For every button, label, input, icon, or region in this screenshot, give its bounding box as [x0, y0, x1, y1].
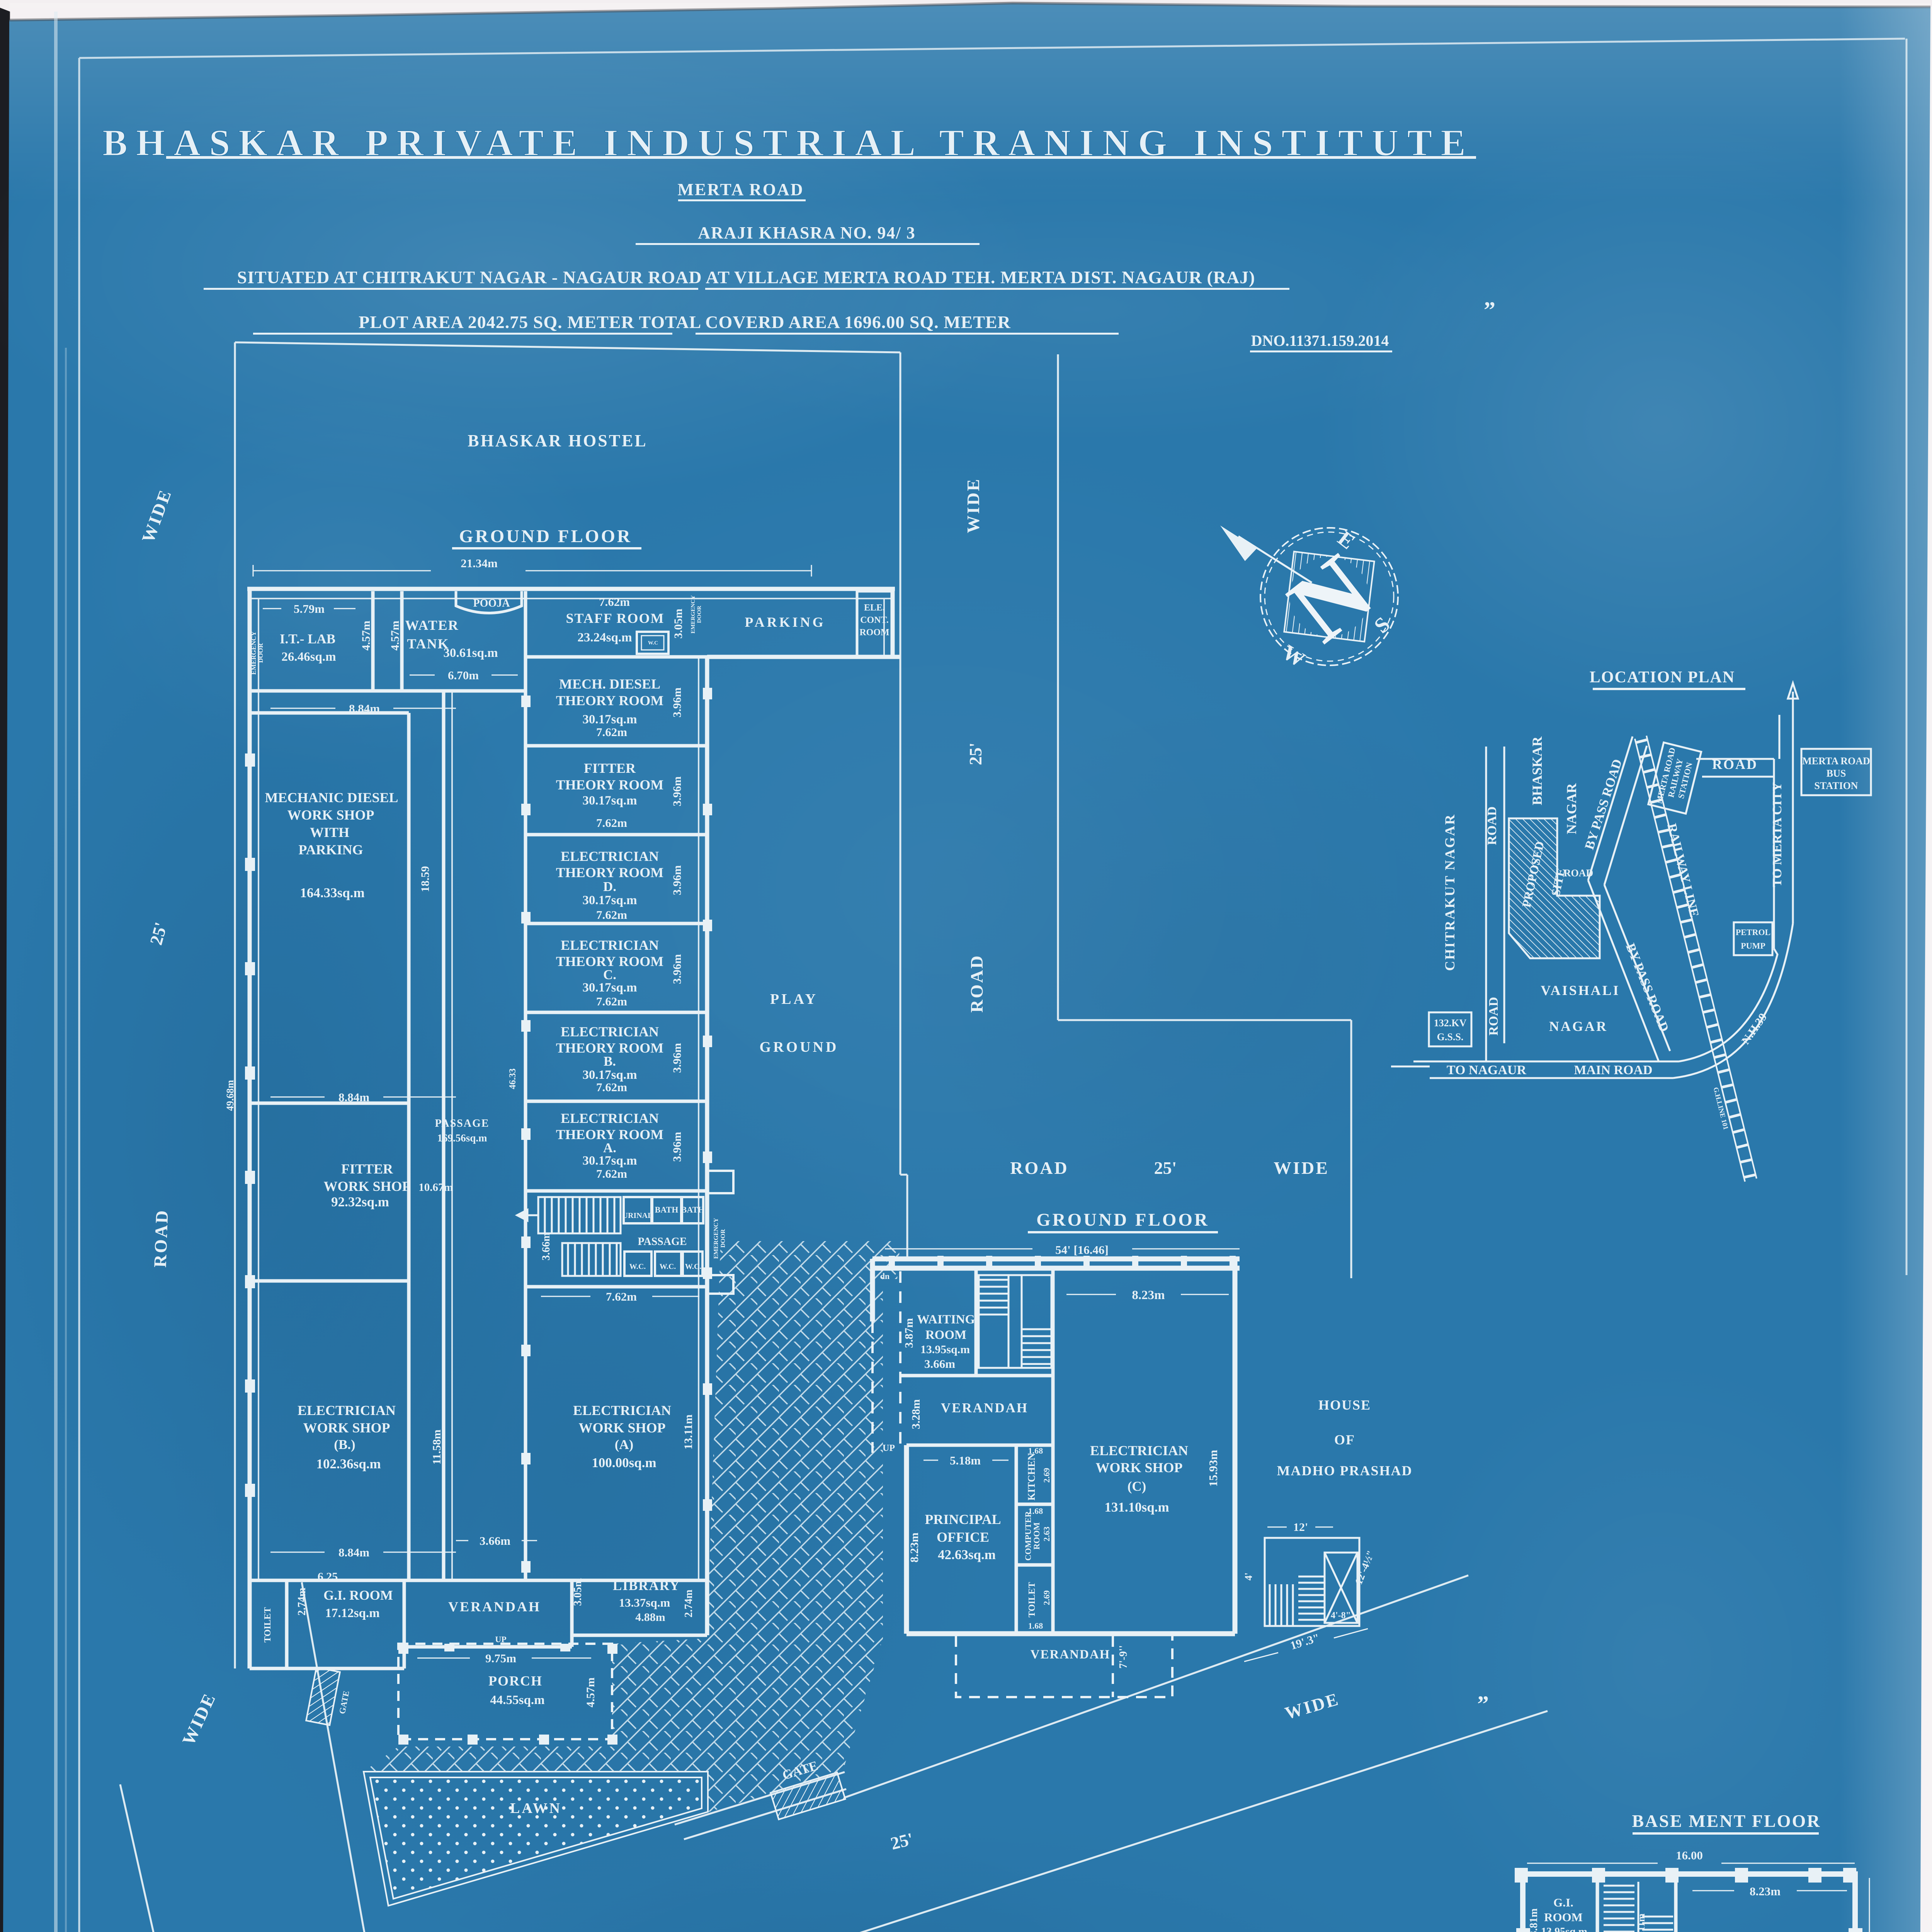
svg-text:3.87m: 3.87m	[903, 1318, 915, 1348]
svg-text:FITTER: FITTER	[341, 1161, 393, 1177]
svg-text:ROAD: ROAD	[150, 1209, 172, 1268]
svg-text:13.37sq.m: 13.37sq.m	[619, 1596, 670, 1609]
svg-text:MERTA ROAD: MERTA ROAD	[1802, 755, 1870, 767]
svg-text:STAFF ROOM: STAFF ROOM	[566, 611, 665, 626]
svg-text:4.57m: 4.57m	[584, 1677, 597, 1708]
svg-text:7.62m: 7.62m	[596, 816, 627, 830]
svg-text:1.68: 1.68	[1028, 1506, 1043, 1516]
svg-text:13.11m: 13.11m	[682, 1415, 695, 1450]
svg-text:EMERGENCY: EMERGENCY	[690, 595, 696, 633]
svg-text:54' [16.46]: 54' [16.46]	[1055, 1243, 1109, 1257]
svg-text:BASE MENT FLOOR: BASE MENT FLOOR	[1632, 1811, 1821, 1831]
svg-text:(A): (A)	[615, 1437, 634, 1452]
svg-text:30.17sq.m: 30.17sq.m	[582, 1068, 637, 1082]
svg-text:WORK SHOP: WORK SHOP	[287, 807, 374, 823]
svg-text:ELECTRICIAN: ELECTRICIAN	[561, 1024, 659, 1039]
svg-text:7.62m: 7.62m	[596, 725, 627, 739]
svg-text:(C): (C)	[1128, 1479, 1146, 1494]
svg-text:3.96m: 3.96m	[671, 954, 684, 984]
svg-text:GROUND FLOOR: GROUND FLOOR	[459, 526, 632, 546]
svg-text:ROAD: ROAD	[967, 954, 986, 1012]
svg-text:PRINCIPAL: PRINCIPAL	[925, 1512, 1001, 1527]
svg-text:UP: UP	[495, 1634, 506, 1644]
svg-text:WITH: WITH	[310, 825, 349, 840]
svg-text:WIDE: WIDE	[963, 478, 983, 533]
svg-text:13.95sq.m: 13.95sq.m	[1541, 1926, 1587, 1932]
svg-text:W.C: W.C	[648, 640, 658, 646]
svg-text:9.75m: 9.75m	[485, 1651, 516, 1665]
svg-text:LAWN: LAWN	[510, 1800, 562, 1816]
svg-text:OFFICE: OFFICE	[937, 1529, 989, 1545]
svg-text:4.57m: 4.57m	[389, 621, 401, 651]
svg-text:W.C.: W.C.	[660, 1262, 676, 1271]
svg-text:ELECTRICIAN: ELECTRICIAN	[561, 849, 659, 864]
svg-text:7'-9'': 7'-9''	[1117, 1645, 1129, 1669]
svg-text:TO NAGAUR: TO NAGAUR	[1447, 1063, 1527, 1077]
svg-text:100.00sq.m: 100.00sq.m	[592, 1455, 656, 1470]
svg-text:7.62m: 7.62m	[596, 908, 627, 922]
svg-text:THEORY ROOM: THEORY ROOM	[556, 1040, 663, 1056]
svg-text:TOILET: TOILET	[1027, 1582, 1037, 1617]
svg-text:102.36sq.m: 102.36sq.m	[316, 1456, 381, 1471]
svg-text:6.70m: 6.70m	[448, 668, 479, 682]
svg-text:7.62m: 7.62m	[606, 1290, 637, 1303]
svg-text:THEORY ROOM: THEORY ROOM	[556, 1127, 663, 1142]
svg-text:4.88m: 4.88m	[635, 1611, 665, 1624]
svg-text:TO MERTA CITY: TO MERTA CITY	[1770, 782, 1784, 887]
svg-text:3.05m: 3.05m	[572, 1578, 584, 1606]
svg-text:44.55sq.m: 44.55sq.m	[490, 1693, 544, 1707]
svg-text:BHASKAR HOSTEL: BHASKAR HOSTEL	[468, 431, 648, 450]
svg-text:ROAD: ROAD	[1010, 1158, 1068, 1178]
svg-text:2.63: 2.63	[1042, 1527, 1051, 1542]
svg-text:HOUSE: HOUSE	[1318, 1397, 1371, 1413]
svg-text:EMERGENCY: EMERGENCY	[250, 631, 257, 675]
svg-text:NAGAR: NAGAR	[1564, 783, 1579, 834]
svg-text:1.68: 1.68	[1028, 1446, 1043, 1456]
svg-text:2.69: 2.69	[1042, 1590, 1051, 1605]
svg-text:WAITING: WAITING	[917, 1313, 975, 1327]
svg-text:23.24sq.m: 23.24sq.m	[577, 631, 632, 645]
svg-text:WORK SHOP: WORK SHOP	[323, 1179, 410, 1194]
svg-text:BHASKAR: BHASKAR	[1529, 736, 1545, 805]
svg-text:A.: A.	[603, 1140, 616, 1155]
svg-text:3.28m: 3.28m	[910, 1399, 922, 1429]
svg-text:ELECTRICIAN: ELECTRICIAN	[298, 1403, 396, 1418]
svg-text:THEORY ROOM: THEORY ROOM	[556, 954, 663, 969]
svg-text:PARKING: PARKING	[745, 614, 825, 630]
svg-text:49.68m: 49.68m	[224, 1080, 236, 1111]
svg-text:26.46sq.m: 26.46sq.m	[281, 650, 336, 664]
svg-text:WORK SHOP: WORK SHOP	[303, 1420, 390, 1435]
svg-text:4.57m: 4.57m	[360, 621, 372, 651]
svg-text:16.00: 16.00	[1676, 1849, 1703, 1862]
svg-text:BUS: BUS	[1827, 768, 1846, 779]
svg-text:1.68: 1.68	[1028, 1621, 1043, 1631]
svg-text:PUMP: PUMP	[1741, 941, 1765, 951]
svg-text:8.84m: 8.84m	[338, 1090, 369, 1104]
svg-text:POOJA: POOJA	[473, 597, 510, 609]
svg-text:164.33sq.m: 164.33sq.m	[300, 885, 364, 900]
svg-text:4'-8": 4'-8"	[1331, 1611, 1351, 1621]
svg-text:ELECTRICIAN: ELECTRICIAN	[561, 937, 659, 953]
svg-text:VERANDAH: VERANDAH	[941, 1400, 1028, 1415]
svg-text:W.C.: W.C.	[685, 1262, 702, 1271]
svg-text:MERTA ROAD: MERTA ROAD	[677, 180, 804, 199]
svg-text:15.93m: 15.93m	[1206, 1450, 1220, 1487]
svg-text:25': 25'	[966, 743, 985, 765]
svg-text:CHITRAKUT NAGAR: CHITRAKUT NAGAR	[1442, 813, 1458, 971]
svg-text:PLOT AREA 2042.75 SQ. METER: PLOT AREA 2042.75 SQ. METER TOTAL COVERD…	[359, 312, 1011, 332]
svg-text:(B.): (B.)	[334, 1437, 355, 1452]
svg-text:30.61sq.m: 30.61sq.m	[443, 646, 498, 660]
svg-text:2.74m: 2.74m	[683, 1590, 695, 1617]
svg-text:”: ”	[1484, 297, 1495, 323]
svg-text:GROUND: GROUND	[760, 1039, 839, 1055]
svg-text:WORK SHOP: WORK SHOP	[578, 1420, 665, 1435]
svg-text:5.79m: 5.79m	[294, 602, 325, 616]
svg-text:4': 4'	[1243, 1572, 1254, 1580]
svg-text:VAISHALI: VAISHALI	[1541, 983, 1620, 998]
svg-text:3.66m: 3.66m	[540, 1233, 552, 1260]
svg-text:OF: OF	[1334, 1432, 1355, 1447]
svg-text:LIBRARY: LIBRARY	[613, 1578, 680, 1593]
svg-text:GROUND FLOOR: GROUND FLOOR	[1036, 1210, 1209, 1230]
svg-text:ELECTRICIAN: ELECTRICIAN	[1090, 1443, 1188, 1458]
svg-text:DOOR: DOOR	[720, 1229, 726, 1248]
svg-text:18.59: 18.59	[419, 866, 432, 892]
svg-text:12': 12'	[1293, 1521, 1308, 1534]
svg-text:3.96m: 3.96m	[671, 1043, 684, 1073]
svg-text:3.81m: 3.81m	[1528, 1908, 1540, 1932]
svg-text:DNO.11371.159.2014: DNO.11371.159.2014	[1251, 332, 1389, 349]
svg-text:THEORY ROOM: THEORY ROOM	[556, 865, 663, 880]
svg-text:MECH. DIESEL: MECH. DIESEL	[559, 676, 660, 692]
svg-text:PLAY: PLAY	[770, 991, 818, 1007]
svg-text:8.84m: 8.84m	[338, 1546, 369, 1559]
svg-text:PORCH: PORCH	[488, 1673, 543, 1689]
svg-text:25': 25'	[1154, 1158, 1177, 1178]
svg-text:ARAJI KHASRA NO. 94/ 3: ARAJI KHASRA NO. 94/ 3	[698, 223, 916, 242]
svg-text:30.17sq.m: 30.17sq.m	[582, 893, 637, 907]
svg-text:KITCHEN: KITCHEN	[1026, 1453, 1037, 1500]
svg-text:CONT.: CONT.	[860, 615, 889, 625]
svg-text:PARKING: PARKING	[298, 842, 363, 857]
svg-text:MAIN ROAD: MAIN ROAD	[1574, 1063, 1652, 1077]
svg-text:30.17sq.m: 30.17sq.m	[582, 713, 637, 726]
svg-text:D.: D.	[603, 879, 616, 894]
svg-text:8.23m: 8.23m	[1750, 1884, 1781, 1898]
svg-text:G.I. ROOM: G.I. ROOM	[323, 1588, 393, 1603]
svg-text:3.05m: 3.05m	[672, 609, 685, 639]
svg-text:ELECTRICIAN: ELECTRICIAN	[561, 1111, 659, 1126]
svg-text:8.23m: 8.23m	[1132, 1288, 1165, 1302]
svg-text:30.17sq.m: 30.17sq.m	[582, 794, 637, 808]
svg-text:3.96m: 3.96m	[671, 1132, 684, 1162]
svg-text:C.: C.	[603, 967, 616, 982]
svg-text:132.KV: 132.KV	[1434, 1017, 1467, 1029]
svg-text:5.18m: 5.18m	[950, 1454, 981, 1467]
svg-text:ROOM: ROOM	[1544, 1910, 1583, 1924]
svg-text:VERANDAH: VERANDAH	[448, 1599, 541, 1614]
svg-text:THEORY ROOM: THEORY ROOM	[556, 693, 663, 708]
svg-text:THEORY ROOM: THEORY ROOM	[556, 777, 663, 793]
svg-text:DOOR: DOOR	[257, 643, 264, 663]
svg-text:17.12sq.m: 17.12sq.m	[325, 1606, 379, 1620]
svg-text:2.69: 2.69	[1042, 1468, 1051, 1483]
svg-text:ROAD: ROAD	[1486, 997, 1501, 1036]
svg-text:FITTER: FITTER	[584, 760, 636, 776]
svg-text:dn: dn	[880, 1271, 889, 1281]
svg-text:VERANDAH: VERANDAH	[1031, 1648, 1111, 1662]
svg-text:ROOM: ROOM	[1032, 1522, 1041, 1549]
svg-text:131.10sq.m: 131.10sq.m	[1104, 1500, 1169, 1515]
svg-text:21.34m: 21.34m	[461, 556, 498, 570]
svg-text:4.11m: 4.11m	[1636, 1913, 1647, 1932]
svg-text:URINAL: URINAL	[622, 1211, 653, 1220]
svg-text:8.23m: 8.23m	[908, 1532, 921, 1563]
svg-text:3.96m: 3.96m	[671, 687, 684, 718]
svg-text:PASSAGE: PASSAGE	[638, 1236, 687, 1248]
svg-text:ROAD: ROAD	[1485, 806, 1499, 845]
svg-text:169.56sq.m: 169.56sq.m	[437, 1132, 487, 1144]
svg-text:PASSAGE: PASSAGE	[435, 1117, 489, 1129]
svg-text:MECHANIC DIESEL: MECHANIC DIESEL	[265, 790, 398, 805]
svg-text:3.96m: 3.96m	[671, 776, 684, 806]
svg-text:BATH: BATH	[655, 1205, 679, 1214]
svg-text:TANK: TANK	[407, 636, 449, 651]
svg-text:I.T.- LAB: I.T.- LAB	[280, 631, 335, 646]
svg-text:92.32sq.m: 92.32sq.m	[331, 1194, 389, 1209]
svg-text:7.62m: 7.62m	[596, 1080, 627, 1094]
svg-text:8.84m: 8.84m	[349, 702, 380, 715]
svg-text:G.I.: G.I.	[1553, 1896, 1573, 1909]
svg-text:10.67m: 10.67m	[418, 1181, 453, 1194]
svg-text:46.33: 46.33	[508, 1068, 518, 1089]
svg-text:13.95sq.m: 13.95sq.m	[920, 1343, 970, 1356]
svg-text:”: ”	[1477, 1691, 1489, 1717]
svg-text:30.17sq.m: 30.17sq.m	[582, 981, 637, 995]
svg-text:PETROL: PETROL	[1736, 927, 1770, 937]
svg-text:WORK SHOP: WORK SHOP	[1095, 1460, 1182, 1475]
svg-text:6.25: 6.25	[318, 1570, 338, 1583]
svg-text:11.58m: 11.58m	[430, 1430, 443, 1465]
svg-text:7.62m: 7.62m	[596, 995, 627, 1008]
svg-text:7.62m: 7.62m	[596, 1167, 627, 1180]
svg-text:B.: B.	[604, 1054, 616, 1069]
svg-text:W.C.: W.C.	[629, 1262, 646, 1271]
svg-text:ELE.: ELE.	[864, 603, 885, 613]
svg-text:WIDE: WIDE	[1274, 1158, 1329, 1178]
svg-text:WATER: WATER	[405, 617, 459, 633]
svg-text:ELECTRICIAN: ELECTRICIAN	[573, 1403, 671, 1418]
svg-text:MADHO PRASHAD: MADHO PRASHAD	[1277, 1463, 1413, 1478]
svg-text:LOCATION PLAN: LOCATION PLAN	[1590, 668, 1735, 686]
svg-text:3.96m: 3.96m	[671, 865, 684, 895]
svg-text:ROOM: ROOM	[859, 628, 889, 638]
svg-text:DOOR: DOOR	[696, 605, 702, 623]
svg-text:42.63sq.m: 42.63sq.m	[938, 1547, 996, 1562]
svg-text:STATION: STATION	[1814, 780, 1858, 791]
svg-text:NAGAR: NAGAR	[1549, 1019, 1608, 1034]
svg-text:3.66m: 3.66m	[480, 1534, 510, 1548]
svg-text:7.62m: 7.62m	[599, 595, 630, 609]
svg-text:BATH: BATH	[681, 1205, 705, 1214]
svg-text:G.S.S.: G.S.S.	[1437, 1031, 1464, 1043]
svg-text:UP: UP	[883, 1443, 895, 1453]
svg-text:TOILET: TOILET	[263, 1607, 273, 1643]
svg-text:3.66m: 3.66m	[924, 1357, 955, 1371]
svg-text:SITUATED AT CHITRAKUT NAGAR -: SITUATED AT CHITRAKUT NAGAR - NAGAUR ROA…	[237, 267, 1255, 287]
svg-text:EMERGENCY: EMERGENCY	[713, 1218, 719, 1259]
svg-text:30.17sq.m: 30.17sq.m	[582, 1154, 637, 1168]
svg-text:ROAD: ROAD	[1712, 757, 1758, 772]
svg-text:ROOM: ROOM	[925, 1328, 966, 1342]
svg-text:2.74m: 2.74m	[296, 1588, 308, 1616]
